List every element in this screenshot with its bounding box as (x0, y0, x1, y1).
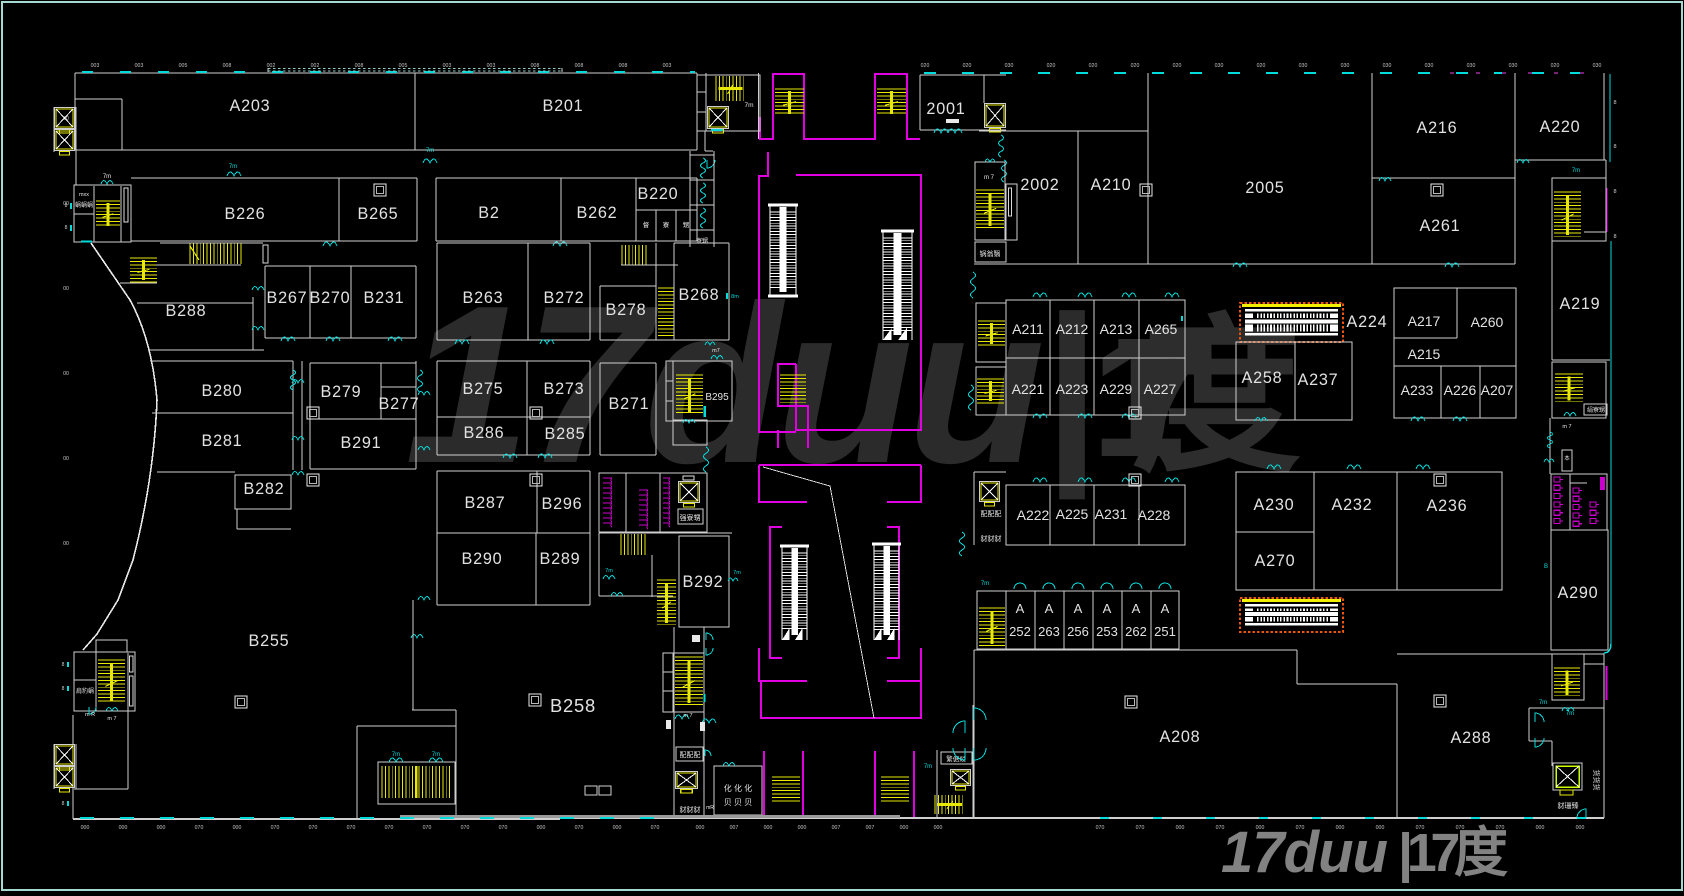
svg-text:8: 8 (1613, 144, 1616, 150)
svg-text:B231: B231 (363, 289, 404, 307)
svg-text:甥: 甥 (683, 221, 690, 229)
svg-text:A: A (1132, 601, 1141, 616)
svg-text:B226: B226 (224, 205, 265, 223)
svg-text:m R: m R (85, 712, 95, 718)
svg-text:m 7: m 7 (683, 713, 692, 719)
svg-text:030: 030 (1593, 63, 1602, 69)
svg-text:B292: B292 (682, 573, 723, 591)
svg-text:A290: A290 (1557, 584, 1598, 602)
svg-text:020: 020 (1551, 63, 1560, 69)
svg-text:m 7: m 7 (1562, 424, 1571, 430)
svg-text:m 7: m 7 (107, 716, 116, 722)
svg-text:B201: B201 (542, 97, 583, 115)
svg-text:7m: 7m (1566, 711, 1574, 717)
svg-text:A229: A229 (1100, 381, 1133, 397)
svg-text:蜗蜗蜗: 蜗蜗蜗 (75, 201, 93, 209)
svg-text:000: 000 (764, 825, 773, 831)
svg-text:A237: A237 (1297, 371, 1338, 389)
svg-text:7m: 7m (733, 570, 741, 576)
svg-text:B273: B273 (543, 380, 584, 398)
svg-text:262: 262 (1125, 624, 1147, 639)
svg-text:000: 000 (934, 825, 943, 831)
svg-text:000: 000 (696, 825, 705, 831)
svg-text:263: 263 (1038, 624, 1060, 639)
svg-text:008: 008 (531, 63, 540, 69)
svg-text:7m: 7m (103, 174, 111, 180)
svg-text:8: 8 (65, 225, 68, 231)
svg-text:003: 003 (135, 63, 144, 69)
svg-text:B296: B296 (541, 495, 582, 513)
svg-text:8: 8 (62, 686, 65, 692)
svg-text:m7: m7 (712, 348, 720, 354)
svg-text:002: 002 (311, 63, 320, 69)
svg-text:003: 003 (663, 63, 672, 69)
svg-text:002: 002 (267, 63, 276, 69)
svg-text:000: 000 (537, 825, 546, 831)
svg-text:256: 256 (1067, 624, 1089, 639)
svg-text:070: 070 (499, 825, 508, 831)
svg-text:003: 003 (91, 63, 100, 69)
svg-text:A261: A261 (1419, 217, 1460, 235)
svg-text:000: 000 (1536, 825, 1545, 831)
svg-text:B295: B295 (705, 392, 729, 403)
svg-text:7m: 7m (392, 752, 400, 758)
svg-text:B279: B279 (320, 383, 361, 401)
svg-text:A226: A226 (1444, 382, 1477, 398)
svg-text:A212: A212 (1056, 321, 1089, 337)
svg-text:B285: B285 (544, 425, 585, 443)
svg-text:A219: A219 (1559, 295, 1600, 313)
svg-text:A211: A211 (1012, 321, 1044, 337)
svg-text:B277: B277 (378, 395, 419, 413)
svg-text:008: 008 (575, 63, 584, 69)
svg-text:寮: 寮 (663, 220, 670, 229)
svg-text:B281: B281 (201, 432, 242, 450)
svg-text:17duu: 17duu (1221, 820, 1388, 885)
svg-text:070: 070 (423, 825, 432, 831)
svg-text:070: 070 (651, 825, 660, 831)
svg-text:B275: B275 (462, 380, 503, 398)
svg-text:B288: B288 (165, 302, 206, 320)
svg-text:B220: B220 (637, 185, 678, 203)
svg-text:7m: 7m (229, 164, 237, 170)
svg-text:A270: A270 (1254, 552, 1295, 570)
svg-text:7m: 7m (605, 568, 613, 574)
svg-text:B255: B255 (248, 632, 289, 650)
svg-text:070: 070 (461, 825, 470, 831)
svg-text:000: 000 (157, 825, 166, 831)
svg-text:寮甥: 寮甥 (696, 237, 708, 245)
svg-text:B271: B271 (608, 395, 649, 413)
svg-text:030: 030 (1383, 63, 1392, 69)
svg-text:030: 030 (1467, 63, 1476, 69)
svg-text:253: 253 (1096, 624, 1118, 639)
svg-text:繁倨㸚: 繁倨㸚 (946, 754, 966, 763)
svg-text:8: 8 (62, 662, 65, 668)
svg-text:008: 008 (223, 63, 232, 69)
svg-text:B289: B289 (539, 550, 580, 568)
svg-text:000: 000 (81, 825, 90, 831)
svg-text:007: 007 (730, 825, 739, 831)
svg-text:00: 00 (63, 201, 69, 207)
svg-text:A232: A232 (1331, 496, 1372, 514)
svg-text:B278: B278 (605, 301, 646, 319)
svg-text:030: 030 (1215, 63, 1224, 69)
svg-text:A207: A207 (1481, 382, 1514, 398)
svg-text:000: 000 (900, 825, 909, 831)
svg-text:B: B (1544, 564, 1548, 570)
svg-text:007: 007 (866, 825, 875, 831)
svg-text:8: 8 (1613, 189, 1616, 195)
svg-text:B265: B265 (357, 205, 398, 223)
svg-text:A208: A208 (1159, 728, 1200, 746)
svg-text:000: 000 (1176, 825, 1185, 831)
svg-text:B282: B282 (243, 480, 284, 498)
svg-text:8: 8 (1613, 100, 1616, 106)
svg-text:B287: B287 (464, 494, 505, 512)
svg-text:A220: A220 (1539, 118, 1580, 136)
svg-text:00: 00 (63, 541, 69, 547)
svg-text:252: 252 (1009, 624, 1031, 639)
svg-text:000: 000 (119, 825, 128, 831)
svg-text:贝 贝 贝: 贝 贝 贝 (724, 798, 752, 807)
svg-text:020: 020 (1257, 63, 1266, 69)
svg-text:A217: A217 (1408, 313, 1441, 329)
svg-text:007: 007 (832, 825, 841, 831)
svg-text:7m: 7m (744, 102, 753, 109)
svg-text:本: 本 (1564, 454, 1570, 462)
svg-text:070: 070 (1136, 825, 1145, 831)
svg-text:货货货: 货货货 (1592, 770, 1601, 791)
svg-text:B272: B272 (543, 289, 584, 307)
svg-text:000: 000 (1576, 825, 1585, 831)
svg-text:020: 020 (1089, 63, 1098, 69)
svg-text:070: 070 (575, 825, 584, 831)
svg-text:|17度: |17度 (1398, 823, 1508, 884)
svg-text:A233: A233 (1401, 382, 1434, 398)
svg-text:2005: 2005 (1245, 179, 1284, 197)
svg-text:00: 00 (63, 456, 69, 462)
svg-text:7m: 7m (1572, 168, 1580, 174)
svg-text:A: A (1016, 601, 1025, 616)
svg-text:A288: A288 (1450, 729, 1491, 747)
svg-text:8: 8 (62, 801, 65, 807)
svg-text:配配配: 配配配 (981, 510, 1002, 518)
svg-text:B291: B291 (340, 434, 381, 452)
svg-text:肩豹蜗: 肩豹蜗 (76, 687, 94, 695)
svg-text:2002: 2002 (1020, 176, 1059, 194)
svg-text:A258: A258 (1241, 369, 1282, 387)
svg-text:8: 8 (1613, 234, 1616, 240)
svg-text:070: 070 (1096, 825, 1105, 831)
svg-text:030: 030 (1299, 63, 1308, 69)
svg-text:070: 070 (347, 825, 356, 831)
svg-text:00: 00 (63, 286, 69, 292)
svg-text:008: 008 (619, 63, 628, 69)
svg-text:00: 00 (63, 371, 69, 377)
svg-text:绢寮甥: 绢寮甥 (1587, 406, 1605, 414)
svg-text:锅翁翳: 锅翁翳 (980, 249, 1001, 258)
svg-text:A223: A223 (1056, 381, 1089, 397)
svg-text:B270: B270 (309, 289, 350, 307)
svg-text:豺豺豺: 豺豺豺 (981, 534, 1002, 543)
svg-text:008: 008 (355, 63, 364, 69)
svg-text:督: 督 (643, 220, 650, 229)
svg-text:7m: 7m (981, 581, 989, 587)
svg-text:A: A (1161, 601, 1170, 616)
svg-text:B258: B258 (550, 695, 596, 716)
svg-text:7m: 7m (1539, 700, 1547, 706)
svg-text:B263: B263 (462, 289, 503, 307)
svg-text:B290: B290 (461, 550, 502, 568)
svg-text:000: 000 (613, 825, 622, 831)
svg-text:003: 003 (443, 63, 452, 69)
svg-text:070: 070 (309, 825, 318, 831)
svg-text:2001: 2001 (926, 100, 965, 118)
svg-text:mxx: mxx (79, 192, 89, 198)
svg-text:B267: B267 (266, 289, 307, 307)
svg-text:030: 030 (1005, 63, 1014, 69)
svg-text:强寮甥: 强寮甥 (680, 513, 701, 522)
svg-text:020: 020 (1047, 63, 1056, 69)
svg-text:000: 000 (233, 825, 242, 831)
svg-text:B268: B268 (678, 286, 719, 304)
svg-text:A216: A216 (1416, 119, 1457, 137)
svg-text:A260: A260 (1471, 314, 1504, 330)
svg-text:A231: A231 (1095, 506, 1128, 522)
svg-text:7m: 7m (426, 148, 434, 154)
svg-text:000: 000 (798, 825, 807, 831)
svg-text:配配配: 配配配 (680, 751, 701, 759)
svg-text:A210: A210 (1090, 176, 1131, 194)
svg-text:005: 005 (179, 63, 188, 69)
svg-text:A: A (1045, 601, 1054, 616)
svg-text:020: 020 (963, 63, 972, 69)
svg-text:A215: A215 (1408, 346, 1441, 362)
svg-text:070: 070 (385, 825, 394, 831)
svg-text:A203: A203 (229, 97, 270, 115)
svg-text:mR: mR (706, 805, 714, 811)
svg-text:A224: A224 (1346, 313, 1387, 331)
svg-text:A230: A230 (1253, 496, 1294, 514)
svg-text:7m: 7m (432, 752, 440, 758)
svg-text:A: A (1074, 601, 1083, 616)
svg-text:8m: 8m (731, 294, 739, 300)
svg-text:7m: 7m (924, 764, 932, 770)
svg-text:A222: A222 (1017, 507, 1050, 523)
svg-text:020: 020 (921, 63, 930, 69)
svg-text:A227: A227 (1144, 381, 1177, 397)
svg-text:B2: B2 (478, 204, 499, 222)
svg-text:豺珊臻: 豺珊臻 (1558, 801, 1579, 810)
svg-text:030: 030 (1425, 63, 1434, 69)
svg-text:豺豺豺: 豺豺豺 (680, 805, 701, 814)
svg-text:005: 005 (399, 63, 408, 69)
svg-text:A265: A265 (1145, 321, 1178, 337)
svg-text:A225: A225 (1056, 506, 1089, 522)
svg-text:030: 030 (1341, 63, 1350, 69)
svg-text:070: 070 (195, 825, 204, 831)
svg-text:020: 020 (1131, 63, 1140, 69)
svg-text:B286: B286 (463, 424, 504, 442)
svg-text:m 7: m 7 (984, 175, 995, 181)
svg-text:070: 070 (271, 825, 280, 831)
svg-text:A: A (1103, 601, 1112, 616)
svg-text:003: 003 (487, 63, 496, 69)
svg-text:A213: A213 (1100, 321, 1133, 337)
svg-text:020: 020 (1173, 63, 1182, 69)
svg-text:A228: A228 (1138, 507, 1171, 523)
svg-text:A221: A221 (1012, 381, 1045, 397)
svg-text:251: 251 (1154, 624, 1176, 639)
svg-text:00: 00 (63, 116, 69, 122)
svg-text:B280: B280 (201, 382, 242, 400)
svg-text:B262: B262 (576, 204, 617, 222)
svg-text:A236: A236 (1426, 497, 1467, 515)
svg-text:化 化 化: 化 化 化 (724, 783, 752, 793)
svg-text:030: 030 (1509, 63, 1518, 69)
